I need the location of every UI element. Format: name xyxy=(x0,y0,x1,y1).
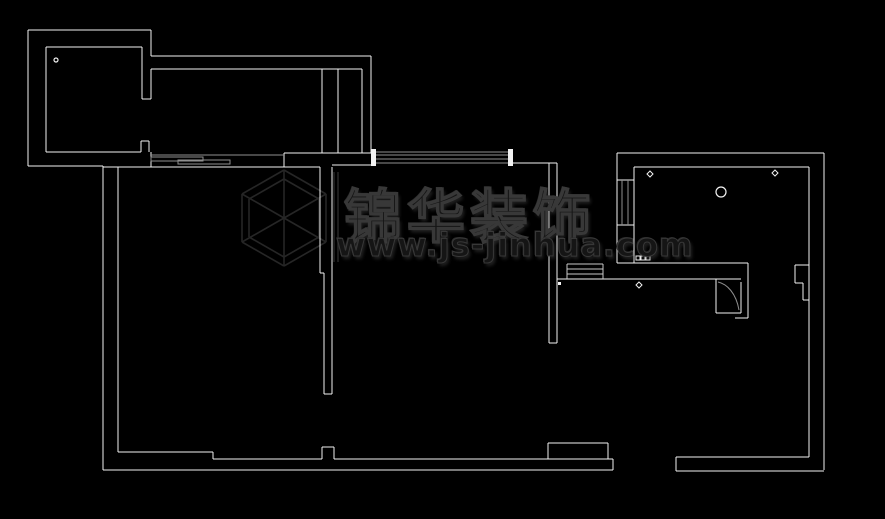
cad-viewport: 锦华装饰 www.js-jinhua.com xyxy=(0,0,885,519)
watermark-url-text: www.js-jinhua.com xyxy=(336,226,693,264)
